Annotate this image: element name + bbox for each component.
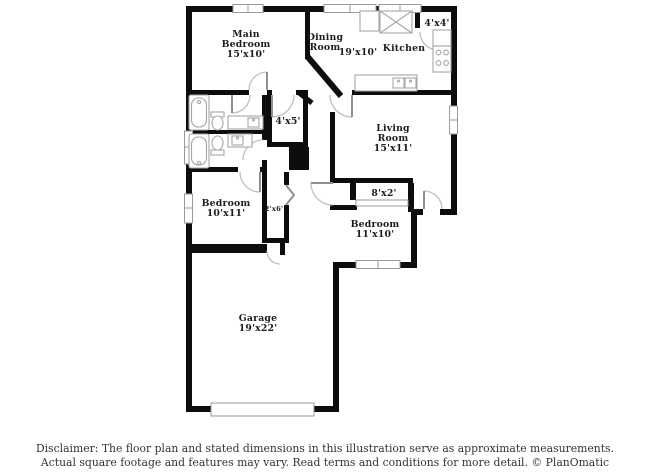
counter-icon xyxy=(355,75,417,91)
room-label-living: Living Room 15'x11' xyxy=(374,123,413,154)
garage-door xyxy=(211,403,314,416)
svg-text:Room: Room xyxy=(310,42,341,53)
svg-text:15'x11': 15'x11' xyxy=(374,143,413,154)
stove-icon xyxy=(433,46,451,72)
closet-label-8x2: 8'x2' xyxy=(371,188,396,199)
room-label-garage: Garage 19'x22' xyxy=(239,313,278,334)
great-room-dims: 19'x10' xyxy=(339,47,378,58)
disclaimer: Disclaimer: The floor plan and stated di… xyxy=(36,442,614,469)
room-label-bedroom3: Bedroom 11'x10' xyxy=(351,219,400,240)
closet-label-2x6: 2'x6' xyxy=(265,205,284,213)
bifold-door xyxy=(286,185,294,205)
room-label-main-bedroom: Main Bedroom 15'x10' xyxy=(222,29,271,60)
svg-text:15'x10': 15'x10' xyxy=(227,49,266,60)
floorplan-illustration: Main Bedroom 15'x10' Dining Room 19'x10'… xyxy=(0,0,650,473)
svg-text:19'x22': 19'x22' xyxy=(239,323,278,334)
closet-label-4x4: 4'x4' xyxy=(424,18,449,29)
svg-text:11'x10': 11'x10' xyxy=(356,229,395,240)
closet-door-sill xyxy=(356,200,408,206)
counter-icon xyxy=(433,30,451,46)
toilet-icon xyxy=(211,150,224,155)
svg-text:10'x11': 10'x11' xyxy=(207,208,246,219)
svg-text:Actual square footage and feat: Actual square footage and features may v… xyxy=(40,456,609,469)
counter-icon xyxy=(360,11,379,31)
room-labels: Main Bedroom 15'x10' Dining Room 19'x10'… xyxy=(202,18,450,334)
room-label-bedroom2: Bedroom 10'x11' xyxy=(202,198,251,219)
closet-label-4x5: 4'x5' xyxy=(275,116,300,127)
svg-text:Disclaimer: The floor plan and: Disclaimer: The floor plan and stated di… xyxy=(36,442,614,455)
floorplan-svg: Main Bedroom 15'x10' Dining Room 19'x10'… xyxy=(0,0,650,473)
room-label-kitchen: Kitchen xyxy=(383,43,425,54)
